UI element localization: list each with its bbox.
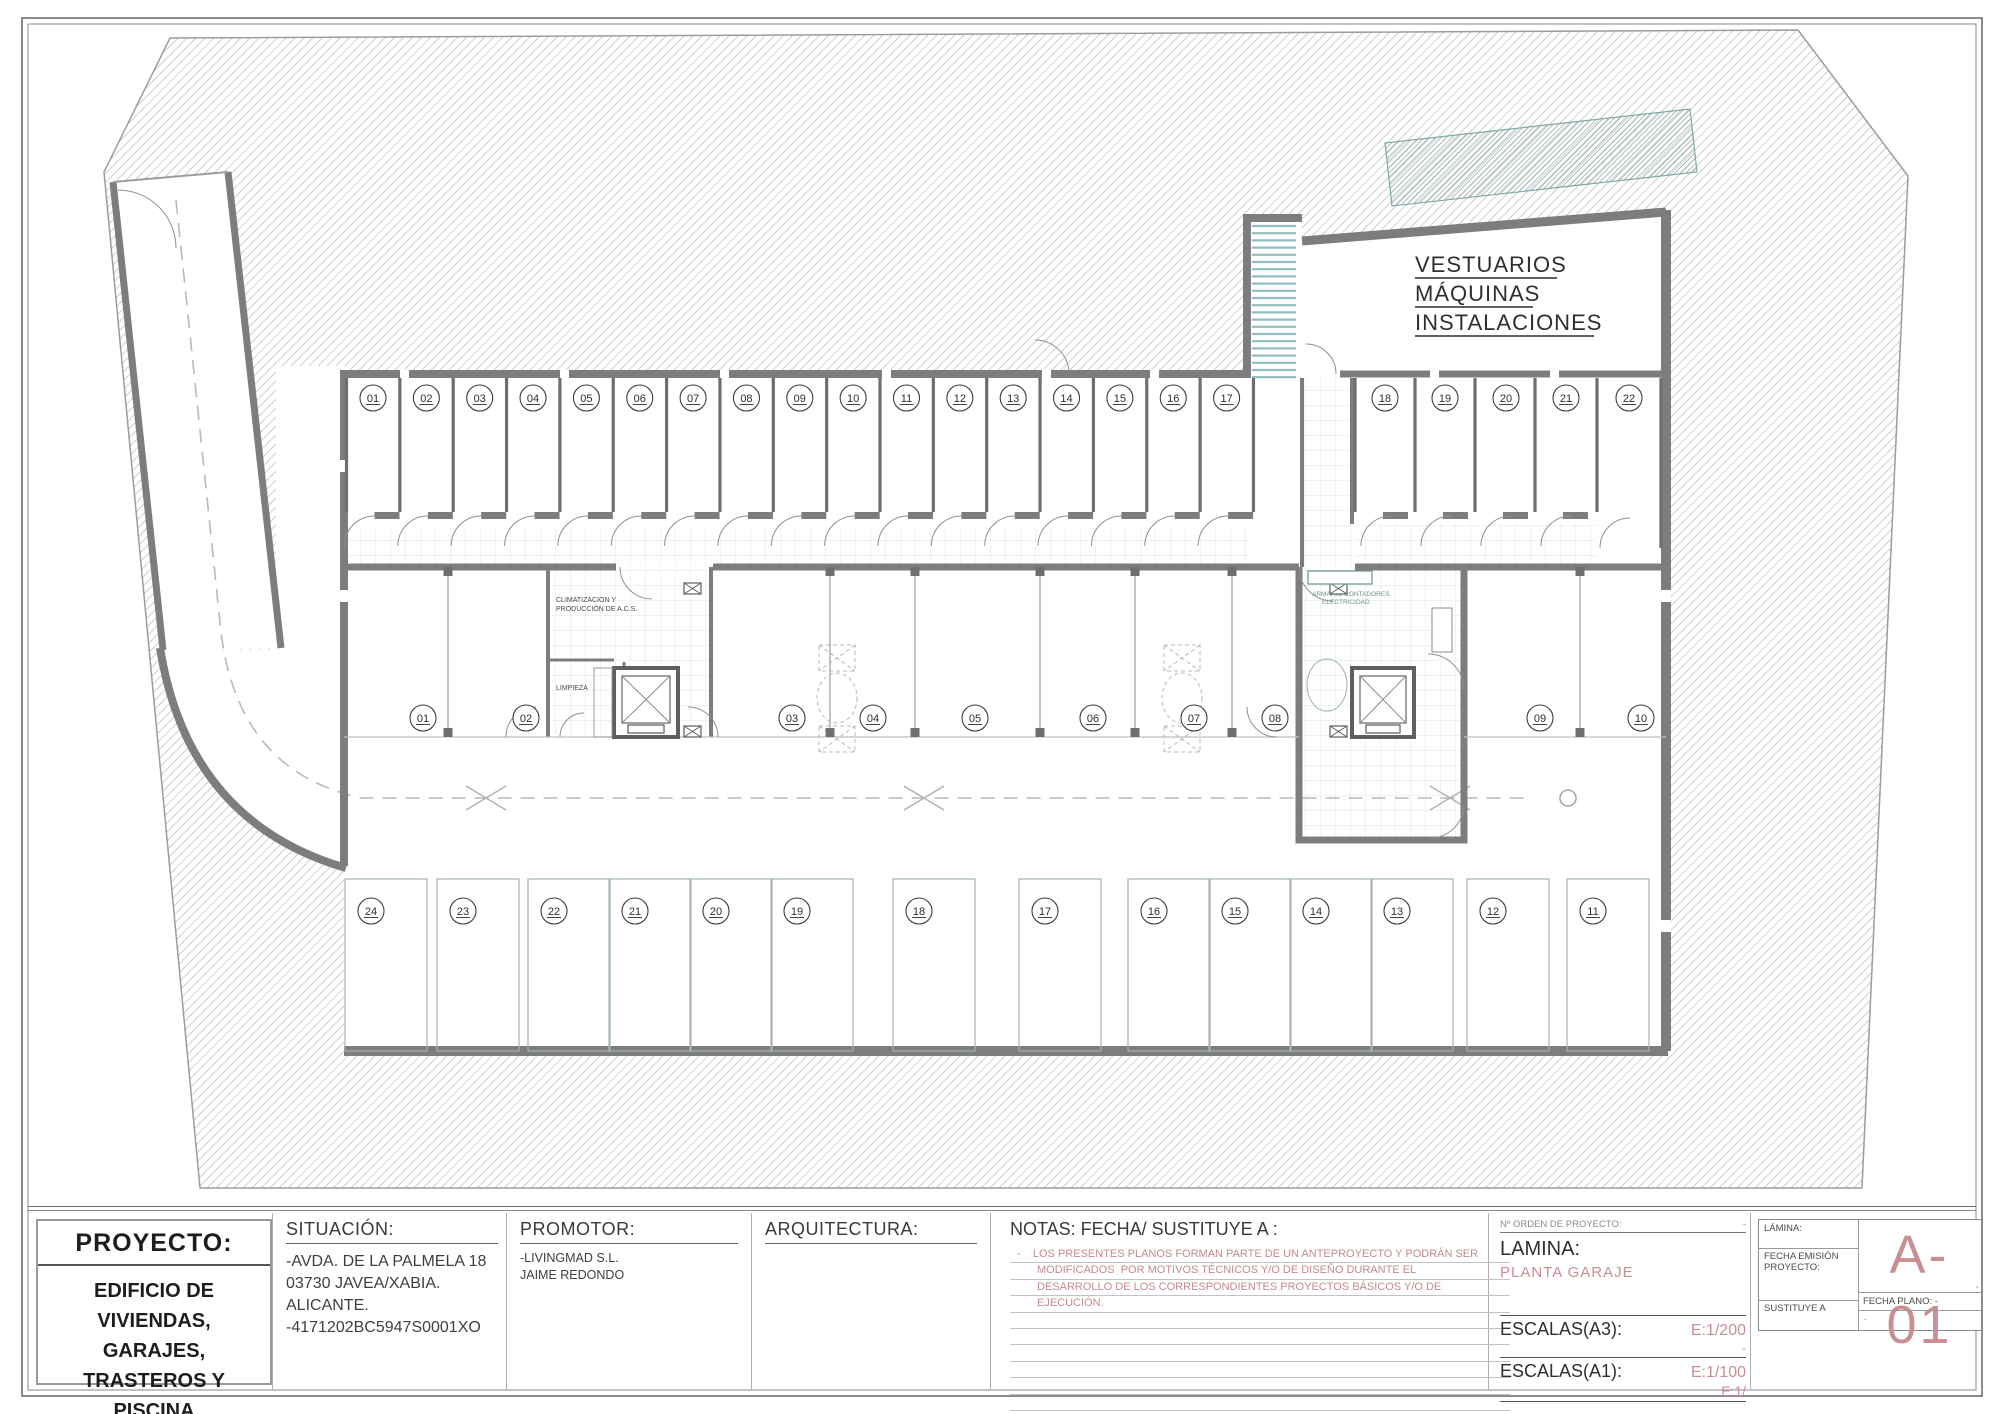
unit-number: 08 — [740, 393, 752, 405]
notas-line — [1010, 1395, 1510, 1411]
divider — [272, 1213, 273, 1389]
side-strip — [276, 366, 348, 658]
notas-line — [1010, 1362, 1510, 1378]
escala-a1-sub: E:1/ — [1500, 1383, 1746, 1399]
unit-number: 22 — [548, 906, 560, 918]
notas-line — [1010, 1378, 1510, 1394]
column — [911, 567, 920, 576]
sustituye-value: - — [1858, 1311, 1981, 1330]
unit-number: 22 — [1623, 393, 1635, 405]
notas-line — [1010, 1345, 1510, 1361]
orden-value: - — [1743, 1219, 1746, 1230]
unit-number: 10 — [847, 393, 859, 405]
notas-line: DESARROLLO DE LOS CORRESPONDIENTES PROYE… — [1010, 1280, 1510, 1296]
drawing-sheet: VESTUARIOS MÁQUINAS INSTALACIONES CLIMAT… — [0, 0, 2000, 1414]
svg-text:INSTALACIONES: INSTALACIONES — [1415, 310, 1602, 335]
unit-number: 23 — [457, 906, 469, 918]
unit-number: 13 — [1391, 906, 1403, 918]
unit-number: 16 — [1148, 906, 1160, 918]
unit-number: 09 — [794, 393, 806, 405]
unit-number: 18 — [913, 906, 925, 918]
wall-stub — [1563, 512, 1588, 519]
unit-number: 19 — [1439, 393, 1451, 405]
unit-number: 14 — [1060, 393, 1072, 405]
escala-a1-block: ESCALAS(A1): E:1/100 E:1/ — [1500, 1357, 1746, 1402]
unit-number: 12 — [1487, 906, 1499, 918]
lamina-value: PLANTA GARAJE — [1500, 1264, 1746, 1281]
corner-sustituye-label: SUSTITUYE A — [1759, 1300, 1858, 1314]
column — [444, 728, 453, 737]
column — [826, 567, 835, 576]
wall-stub — [1503, 512, 1528, 519]
unit-number: 11 — [1587, 906, 1598, 918]
divider — [751, 1213, 752, 1389]
unit-number: 01 — [367, 393, 379, 405]
wall-stub — [375, 512, 400, 519]
column — [911, 728, 920, 737]
svg-text:PRODUCCIÓN DE A.C.S.: PRODUCCIÓN DE A.C.S. — [556, 604, 637, 613]
unit-number: 21 — [629, 906, 641, 918]
wall-stub — [1068, 512, 1093, 519]
sheet-code: A-01 — [1858, 1220, 1981, 1293]
unit-number: 09 — [1534, 713, 1546, 725]
unit-number: 05 — [580, 393, 592, 405]
column — [1576, 728, 1585, 737]
escala-a1-label: ESCALAS(A1): — [1500, 1361, 1622, 1382]
unit-number: 19 — [791, 906, 803, 918]
column — [1131, 567, 1140, 576]
unit-number: 02 — [420, 393, 432, 405]
unit-number: 03 — [474, 393, 486, 405]
unit-number: 11 — [901, 393, 912, 405]
wall-stub — [1175, 512, 1200, 519]
wall-stub — [855, 512, 880, 519]
unit-number: 18 — [1379, 393, 1391, 405]
divider — [506, 1213, 507, 1389]
unit-number: 16 — [1167, 393, 1179, 405]
project-title: EDIFICIO DE VIVIENDAS, GARAJES, TRASTERO… — [38, 1276, 270, 1414]
lamina-column: Nº ORDEN DE PROYECTO: - LAMINA: PLANTA G… — [1500, 1219, 1746, 1281]
fecha-plano: FECHA PLANO: - — [1858, 1292, 1981, 1311]
divider — [1750, 1213, 1751, 1389]
unit-number: 07 — [1188, 713, 1200, 725]
wall-stub — [801, 512, 826, 519]
column — [1576, 567, 1585, 576]
promotor-label: PROMOTOR: — [520, 1219, 738, 1244]
unit-number: 05 — [969, 713, 981, 725]
title-block: PROYECTO: EDIFICIO DE VIVIENDAS, GARAJES… — [28, 1206, 1976, 1391]
wall-stub — [641, 512, 666, 519]
wall-stub — [1383, 512, 1408, 519]
wall-stub — [481, 512, 506, 519]
right-corridor-tiles — [1356, 524, 1596, 565]
unit-number: 15 — [1229, 906, 1241, 918]
unit-number: 20 — [1500, 393, 1512, 405]
promotor-names: -LIVINGMAD S.L. JAIME REDONDO — [520, 1250, 738, 1284]
orden-row: Nº ORDEN DE PROYECTO: - — [1500, 1219, 1746, 1233]
escala-a3-value: E:1/200 — [1691, 1322, 1746, 1340]
notas-line — [1010, 1313, 1510, 1329]
unit-number: 17 — [1220, 393, 1232, 405]
wall-stub — [1228, 512, 1253, 519]
unit-number: 12 — [954, 393, 966, 405]
wall-stub — [1121, 512, 1146, 519]
corner-lamina-label: LÁMINA: — [1759, 1220, 1858, 1234]
unit-number: 10 — [1635, 713, 1647, 725]
escala-a3-label: ESCALAS(A3): — [1500, 1319, 1622, 1340]
svg-text:LIMPIEZA: LIMPIEZA — [556, 685, 588, 692]
svg-text:ARMARIO CONTADORES: ARMARIO CONTADORES — [1312, 591, 1390, 598]
wall-stub — [535, 512, 560, 519]
wall-stub — [588, 512, 613, 519]
unit-number: 20 — [710, 906, 722, 918]
unit-number: 06 — [634, 393, 646, 405]
column — [826, 728, 835, 737]
promotor-column: PROMOTOR: -LIVINGMAD S.L. JAIME REDONDO — [520, 1219, 738, 1284]
unit-number: 01 — [417, 713, 429, 725]
notas-line: - LOS PRESENTES PLANOS FORMAN PARTE DE U… — [1010, 1247, 1510, 1263]
unit-number: 13 — [1007, 393, 1019, 405]
escala-a3-block: ESCALAS(A3): E:1/200 - — [1500, 1315, 1746, 1355]
sheet-code-box: LÁMINA: FECHA EMISIÓN PROYECTO: SUSTITUY… — [1758, 1219, 1982, 1331]
notas-table: - LOS PRESENTES PLANOS FORMAN PARTE DE U… — [1010, 1247, 1510, 1411]
title-block-divider — [28, 1210, 1976, 1211]
divider — [38, 1264, 270, 1266]
column — [1036, 728, 1045, 737]
unit-number: 07 — [687, 393, 699, 405]
wall-stub — [748, 512, 773, 519]
escala-a3-sub: - — [1500, 1341, 1746, 1355]
situacion-column: SITUACIÓN: -AVDA. DE LA PALMELA 18 03730… — [286, 1219, 498, 1339]
wall-stub — [1015, 512, 1040, 519]
stair-corridor-tiles — [1304, 378, 1352, 568]
notas-label: NOTAS: FECHA/ SUSTITUYE A : — [1010, 1219, 1278, 1240]
svg-text:CLIMATIZACION Y: CLIMATIZACION Y — [556, 597, 616, 604]
svg-text:ELECTRICIDAD: ELECTRICIDAD — [1322, 599, 1370, 606]
wall-stub — [695, 512, 720, 519]
notas-line: MODIFICADOS POR MOTIVOS TÉCNICOS Y/O DE … — [1010, 1263, 1510, 1279]
column — [1036, 567, 1045, 576]
column — [444, 567, 453, 576]
notas-line: EJECUCIÓN. — [1010, 1296, 1510, 1312]
unit-number: 24 — [365, 906, 377, 918]
wall-stub — [428, 512, 453, 519]
wall-stub — [908, 512, 933, 519]
unit-number: 06 — [1087, 713, 1099, 725]
unit-number: 08 — [1269, 713, 1281, 725]
project-box: PROYECTO: EDIFICIO DE VIVIENDAS, GARAJES… — [36, 1219, 272, 1385]
situacion-address: -AVDA. DE LA PALMELA 18 03730 JAVEA/XABI… — [286, 1251, 498, 1339]
column — [1131, 728, 1140, 737]
arquitectura-label: ARQUITECTURA: — [765, 1219, 977, 1244]
wall-stub — [1443, 512, 1468, 519]
unit-number: 03 — [786, 713, 798, 725]
corridor-tiles — [348, 528, 1250, 565]
unit-number: 04 — [527, 393, 539, 405]
corner-fecha-emision-cell: FECHA EMISIÓN PROYECTO: — [1759, 1248, 1859, 1301]
arquitectura-column: ARQUITECTURA: — [765, 1219, 977, 1244]
orden-label: Nº ORDEN DE PROYECTO: — [1500, 1219, 1622, 1230]
unit-number: 02 — [520, 713, 532, 725]
floor-plan: VESTUARIOS MÁQUINAS INSTALACIONES CLIMAT… — [0, 0, 2000, 1414]
lamina-label: LAMINA: — [1500, 1238, 1746, 1261]
column — [1228, 728, 1237, 737]
situacion-label: SITUACIÓN: — [286, 1219, 498, 1244]
corner-lamina-cell: LÁMINA: — [1759, 1220, 1859, 1249]
unit-number: 21 — [1560, 393, 1572, 405]
column — [1228, 567, 1237, 576]
divider — [990, 1213, 991, 1389]
project-label: PROYECTO: — [38, 1229, 270, 1258]
unit-number: 04 — [867, 713, 879, 725]
unit-number: 14 — [1310, 906, 1322, 918]
svg-text:MÁQUINAS: MÁQUINAS — [1415, 281, 1540, 306]
corner-fecha-emision-label: FECHA EMISIÓN PROYECTO: — [1759, 1248, 1858, 1273]
unit-number: 15 — [1114, 393, 1126, 405]
notas-line — [1010, 1329, 1510, 1345]
corner-sustituye-cell: SUSTITUYE A — [1759, 1300, 1859, 1330]
escala-a1-value: E:1/100 — [1691, 1364, 1746, 1382]
unit-number: 17 — [1039, 906, 1051, 918]
svg-text:VESTUARIOS: VESTUARIOS — [1415, 252, 1567, 277]
wall-stub — [961, 512, 986, 519]
